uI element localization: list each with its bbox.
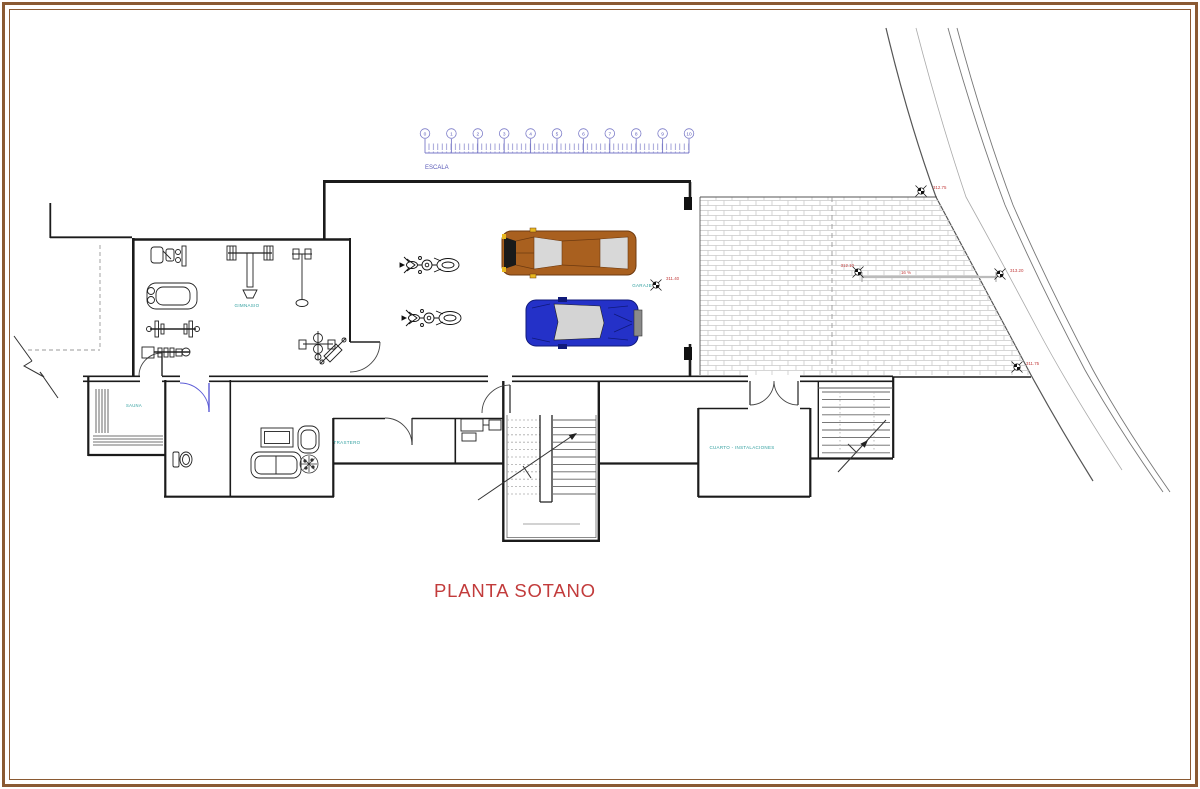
break-line [14,336,58,398]
toilet [173,452,192,467]
gym-bench [147,283,197,309]
room-label-sauna: SAUNA [126,403,142,408]
motorcycle [402,310,461,327]
ramp-slope-label: 16 % [901,270,911,275]
scale-number: 3 [503,131,506,137]
gym-barbell [147,321,200,337]
sauna-benches [93,389,163,445]
scale-number: 4 [529,131,532,137]
scale-number: 7 [608,131,611,137]
brown-car [502,228,636,278]
main-staircase [478,415,596,538]
motorcycle [400,257,459,274]
scale-number: 1 [450,131,453,137]
room-label-garaje: GARAJE [632,283,652,288]
gym-machine [151,246,186,266]
table [261,428,293,447]
scale-number: 9 [661,131,664,137]
section-line [478,433,577,500]
room-label-trastero: TRASTERO [334,440,361,445]
level-marker [651,280,662,291]
scale-number: 2 [476,131,479,137]
hidden-dashed-lines [28,245,100,350]
gym-cable-column [292,249,312,307]
section-line [838,420,886,472]
plan-title: PLANTA SOTANO [434,580,596,601]
right-staircase [822,392,890,472]
scale-number: 8 [635,131,638,137]
scale-number: 0 [424,131,427,137]
plant [300,455,318,473]
boiler-equipment [461,419,501,441]
blue-door [180,383,209,412]
gym-pec-machine [299,331,335,360]
gym-incline-bench [320,338,346,364]
scale-bar: 0 1 2 3 4 5 6 7 8 9 10 ESCALA [420,129,694,171]
level-value: 312.10 [841,263,855,268]
double-door [750,381,798,405]
level-value: 312.75 [933,185,947,190]
level-marker [916,186,927,197]
hatch-ramp [700,197,1031,375]
lounge-furniture [251,426,319,478]
scale-number: 6 [582,131,585,137]
room-label-cuarto-instalaciones: CUARTO - INSTALACIONES [709,445,774,450]
gym-lat-pulldown [227,246,273,298]
level-value: 313.20 [1010,268,1024,273]
floor-plan-drawing: 0 1 2 3 4 5 6 7 8 9 10 ESCALA [0,0,1200,789]
scale-label: ESCALA [425,165,449,171]
plan-sheet: 0 1 2 3 4 5 6 7 8 9 10 ESCALA [0,0,1200,789]
armchair [298,426,319,453]
blue-car [526,297,642,349]
sofa [251,452,301,478]
level-value: 311.75 [1026,361,1040,366]
scale-number: 5 [556,131,559,137]
scale-number: 10 [686,131,692,137]
level-value: 311.40 [666,276,680,281]
room-label-gimnasio: GIMNASIO [235,303,260,308]
